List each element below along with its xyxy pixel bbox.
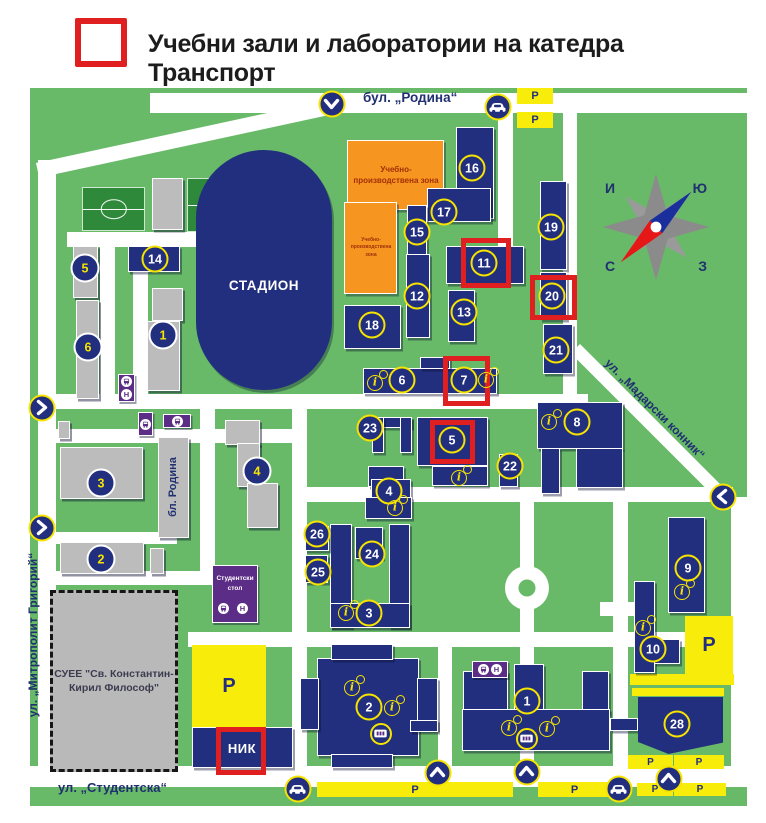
info-icon: i bbox=[367, 375, 383, 391]
bus-icon bbox=[121, 376, 132, 387]
bus-icon bbox=[478, 664, 489, 675]
road bbox=[731, 497, 747, 777]
compass-north-label: С bbox=[605, 258, 615, 274]
bus-stop bbox=[138, 412, 153, 436]
student-canteen-label: Студентскистол bbox=[213, 574, 257, 594]
compass-rose: И Ю С З bbox=[597, 168, 715, 286]
nik-building-label: НИК bbox=[222, 741, 262, 756]
info-icon: i bbox=[541, 414, 557, 430]
parking-letter: P bbox=[411, 784, 418, 796]
building-marker-15: 15 bbox=[404, 219, 431, 246]
building-marker-23: 23 bbox=[357, 415, 384, 442]
building-marker-16: 16 bbox=[459, 155, 486, 182]
school-suee-area: СУЕЕ "Св. Константин- Кирил Философ" bbox=[50, 590, 178, 772]
building-marker-8: 8 bbox=[564, 409, 591, 436]
building-old bbox=[152, 178, 183, 230]
parking-area: P bbox=[674, 783, 726, 796]
school-suee-label: СУЕЕ "Св. Константин- Кирил Философ" bbox=[54, 667, 174, 695]
building-marker-22: 22 bbox=[497, 453, 524, 480]
car-icon bbox=[606, 776, 633, 803]
roundabout bbox=[505, 566, 549, 610]
info-icon: i bbox=[384, 700, 400, 716]
chevron-down-icon bbox=[319, 91, 346, 118]
street-label-mitropolit-grigoriy: ул. „Митрополит Григорий“ bbox=[26, 553, 40, 718]
street-label-rodina: бул. „Родина“ bbox=[363, 90, 457, 105]
building-marker-1: 1 bbox=[514, 688, 541, 715]
building bbox=[576, 448, 623, 488]
info-icon: i bbox=[387, 500, 403, 516]
building-marker-3: 3 bbox=[356, 600, 383, 627]
road bbox=[100, 247, 115, 399]
building-marker-26: 26 bbox=[304, 521, 331, 548]
parking-letter: P bbox=[697, 784, 704, 795]
building-marker-21: 21 bbox=[543, 337, 570, 364]
building-marker-12: 12 bbox=[404, 283, 431, 310]
parking-area: P bbox=[685, 616, 733, 674]
chevron-up-icon bbox=[656, 766, 683, 793]
compass-east-label: И bbox=[605, 180, 615, 196]
production-zone-label: Учебно-производствена зона bbox=[352, 145, 440, 205]
parking-area bbox=[632, 688, 724, 696]
building-marker-24: 24 bbox=[359, 541, 386, 568]
building-old bbox=[152, 288, 183, 321]
building-marker-19: 19 bbox=[538, 214, 565, 241]
building-marker-2: 2 bbox=[356, 694, 383, 721]
road bbox=[200, 399, 215, 577]
production-zone-label-2: Учебно-производствена зона bbox=[348, 225, 394, 271]
car-icon bbox=[285, 776, 312, 803]
building bbox=[331, 754, 393, 768]
block-rodina-label: бл. Родина bbox=[167, 457, 179, 517]
chevron-left-icon bbox=[710, 484, 737, 511]
info-icon: i bbox=[344, 680, 360, 696]
building-old bbox=[225, 420, 260, 445]
info-icon: i bbox=[338, 605, 354, 621]
trolley-stop-icon: H bbox=[491, 664, 502, 675]
info-icon: i bbox=[451, 470, 467, 486]
sports-field bbox=[82, 187, 145, 231]
bus-icon bbox=[218, 603, 229, 614]
building bbox=[300, 678, 319, 730]
info-icon: i bbox=[635, 620, 651, 636]
building-marker-11: 11 bbox=[471, 250, 498, 277]
chevron-up-icon bbox=[514, 759, 541, 786]
info-icon: i bbox=[539, 721, 555, 737]
building-marker-20: 20 bbox=[539, 283, 566, 310]
parking-area: P bbox=[674, 755, 724, 769]
street-label-studentska: ул. „Студентска“ bbox=[58, 780, 167, 795]
parking-area: P bbox=[538, 782, 611, 797]
building-old bbox=[247, 483, 278, 528]
building-marker-5: 5 bbox=[439, 427, 466, 454]
building-marker-28: 28 bbox=[664, 711, 691, 738]
bus-icon bbox=[140, 419, 151, 430]
building-marker-10: 10 bbox=[640, 636, 667, 663]
bus-icon bbox=[172, 416, 183, 427]
building-marker-6: 6 bbox=[389, 367, 416, 394]
building-marker-7: 7 bbox=[451, 367, 478, 394]
building bbox=[582, 671, 609, 713]
building-marker-13: 13 bbox=[451, 299, 478, 326]
atm-icon bbox=[516, 728, 538, 750]
building-marker-9: 9 bbox=[675, 555, 702, 582]
parking-area bbox=[630, 674, 734, 685]
parking-area: P bbox=[192, 645, 266, 727]
building-marker-5: 5 bbox=[71, 254, 100, 283]
stadium: СТАДИОН bbox=[196, 150, 332, 390]
parking-letter: P bbox=[222, 675, 235, 698]
parking-letter: P bbox=[531, 90, 538, 102]
building-marker-25: 25 bbox=[305, 559, 332, 586]
building-old bbox=[150, 548, 164, 574]
parking-area: P bbox=[317, 782, 513, 797]
building-marker-6: 6 bbox=[74, 333, 103, 362]
parking-letter: P bbox=[696, 757, 703, 768]
building bbox=[541, 448, 560, 494]
chevron-right-icon bbox=[29, 515, 56, 542]
building bbox=[400, 417, 412, 453]
parking-area: P bbox=[517, 88, 553, 104]
bus-stop: H bbox=[472, 661, 508, 678]
car-icon bbox=[485, 94, 512, 121]
trolley-stop-icon: H bbox=[121, 389, 132, 400]
building-marker-3: 3 bbox=[87, 469, 116, 498]
bus-stop: H bbox=[118, 374, 135, 402]
road bbox=[498, 110, 513, 248]
road bbox=[438, 632, 452, 777]
building-marker-14: 14 bbox=[142, 246, 169, 273]
chevron-up-icon bbox=[425, 760, 452, 787]
campus-map-page: Учебни зали и лаборатории на катедра Тра… bbox=[0, 0, 766, 823]
parking-letter: P bbox=[702, 634, 715, 657]
building-marker-2: 2 bbox=[87, 545, 116, 574]
building-marker-1: 1 bbox=[149, 321, 178, 350]
building-marker-18: 18 bbox=[359, 312, 386, 339]
info-icon: i bbox=[674, 584, 690, 600]
road bbox=[292, 487, 733, 502]
chevron-right-icon bbox=[29, 395, 56, 422]
bus-stop bbox=[163, 414, 191, 428]
info-icon: i bbox=[478, 372, 494, 388]
building-old bbox=[58, 421, 70, 439]
road bbox=[613, 495, 628, 782]
building bbox=[410, 720, 438, 732]
atm-icon bbox=[370, 723, 392, 745]
parking-letter: P bbox=[647, 757, 654, 768]
building bbox=[331, 644, 393, 660]
building bbox=[610, 718, 638, 731]
trolley-stop-icon: H bbox=[237, 603, 248, 614]
compass-west-label: З bbox=[698, 258, 707, 274]
building-marker-17: 17 bbox=[431, 199, 458, 226]
building-marker-4: 4 bbox=[243, 457, 272, 486]
parking-area: P bbox=[517, 112, 553, 128]
compass-south-label: Ю bbox=[693, 180, 707, 196]
stadium-label: СТАДИОН bbox=[196, 278, 332, 293]
parking-letter: P bbox=[531, 114, 538, 126]
parking-letter: P bbox=[571, 784, 578, 796]
student-canteen: Студентскистол bbox=[212, 565, 258, 623]
